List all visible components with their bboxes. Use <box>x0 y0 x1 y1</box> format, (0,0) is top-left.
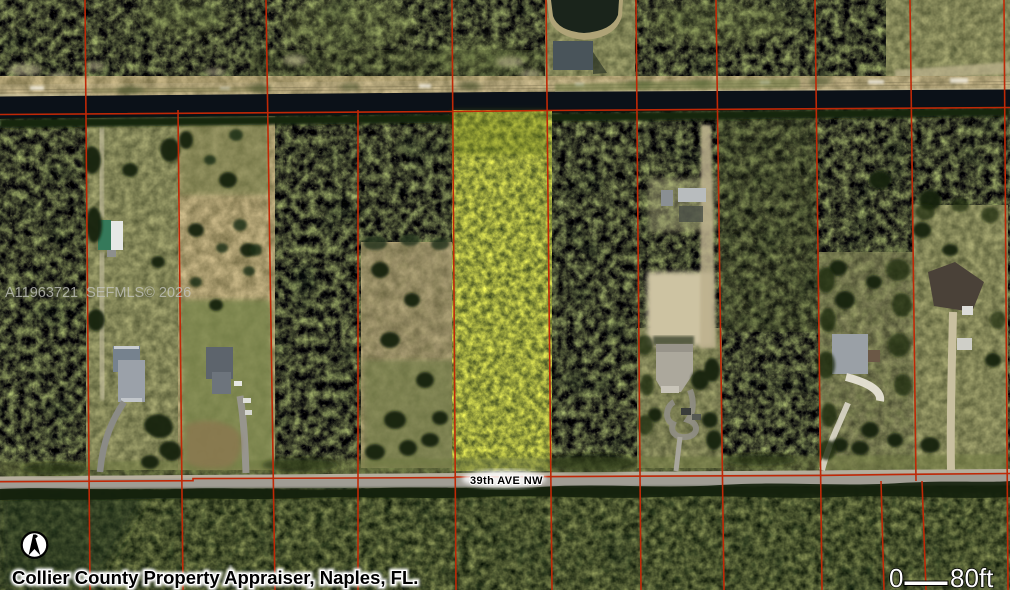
svg-text:39th AVE NW: 39th AVE NW <box>470 475 543 487</box>
svg-text:A11963721 SEFMLS© 2026: A11963721 SEFMLS© 2026 <box>5 285 191 301</box>
svg-text:Collier County Property Apprai: Collier County Property Appraiser, Naple… <box>12 567 418 588</box>
svg-text:0: 0 <box>889 563 903 590</box>
svg-text:80ft: 80ft <box>950 563 994 590</box>
